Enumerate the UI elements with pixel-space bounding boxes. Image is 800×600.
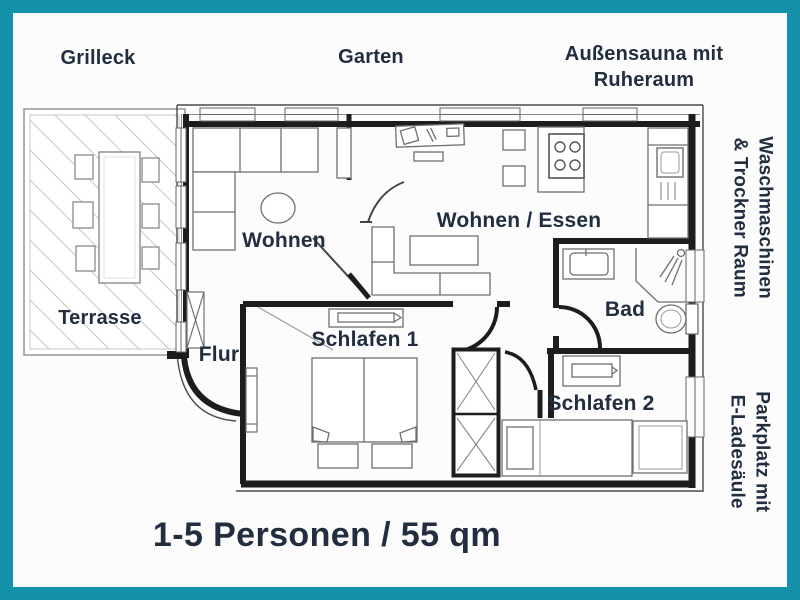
- floor-plan-flyer: Grilleck Garten Außensauna mit Ruheraum …: [0, 0, 800, 600]
- hall-closet: [187, 292, 204, 348]
- label-grilleck: Grilleck: [38, 45, 158, 71]
- stove: [549, 134, 584, 178]
- bedroom1-door-leaf: [246, 368, 257, 432]
- shelf: [414, 152, 443, 161]
- label-wohnen: Wohnen: [224, 227, 344, 254]
- label-schlafen-2: Schlafen 2: [521, 390, 681, 417]
- round-table: [261, 193, 295, 223]
- shower: [636, 248, 688, 302]
- label-bad: Bad: [585, 296, 665, 323]
- stool: [503, 166, 525, 186]
- bed-foot: [372, 444, 412, 468]
- hall-wardrobe: [453, 350, 499, 476]
- desk: [396, 124, 465, 147]
- bedroom2-door-arc: [505, 352, 536, 390]
- hall-entrance-door-arc: [452, 307, 497, 352]
- label-wohnen-essen: Wohnen / Essen: [419, 207, 619, 234]
- label-parkplatz: Parkplatz mit E-Ladesäule: [724, 367, 773, 537]
- pillow: [507, 427, 533, 469]
- label-schlafen-1: Schlafen 1: [285, 326, 445, 353]
- sofa-top: [193, 128, 318, 172]
- label-garten: Garten: [311, 44, 431, 70]
- label-flur: Flur: [179, 341, 259, 368]
- stool: [503, 130, 525, 150]
- caption-persons-area: 1-5 Personen / 55 qm: [117, 516, 537, 555]
- bed-foot: [318, 444, 358, 468]
- coffee-table: [410, 236, 478, 265]
- label-waschmaschinen: Waschmaschinen & Trockner Raum: [727, 133, 776, 303]
- door-leaf: [337, 128, 351, 178]
- dining-door-arc: [368, 182, 404, 222]
- terrace-table: [99, 152, 140, 283]
- label-terrasse: Terrasse: [40, 305, 160, 331]
- label-aussensauna: Außensauna mit Ruheraum: [534, 41, 754, 93]
